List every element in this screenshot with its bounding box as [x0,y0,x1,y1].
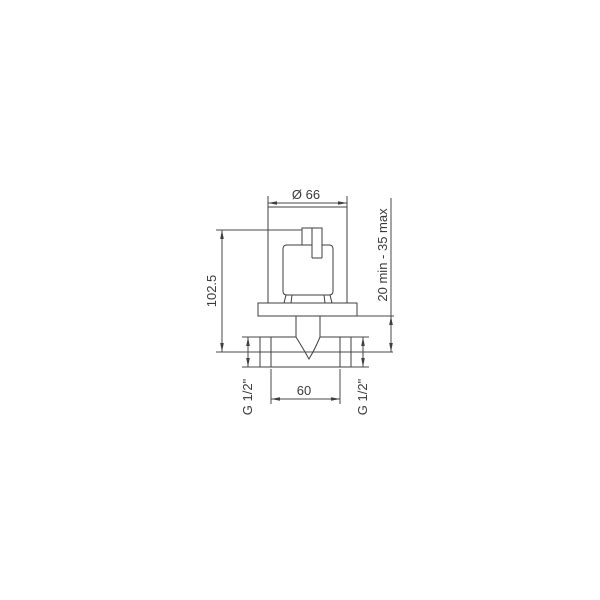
dim-thread-right: G 1/2" [351,337,370,415]
dim-diameter-arrow-right [338,201,347,205]
dim-height-arrow-bottom [220,343,224,352]
dim-label-plate-diameter: Ø 66 [292,187,320,202]
dim-thread-right-arrow-bottom [361,358,365,367]
plate-flange [258,303,357,316]
dim-width-arrow-left [271,397,280,401]
dim-total-height: 102.5 [204,230,302,352]
dim-depth-arrow-bottom [389,343,393,352]
dim-label-install-depth: 20 min - 35 max [375,208,390,302]
dim-label-thread-right: G 1/2" [355,378,370,415]
dim-thread-right-arrow-top [361,337,365,346]
dim-label-port-spacing: 60 [297,383,311,398]
escutcheon-plate [268,207,347,303]
valve-technical-drawing: Ø 66 102.5 20 min - 35 max G 1/2" [0,0,600,600]
dim-thread-left: G 1/2" [240,337,260,415]
dim-depth-arrow-top [389,316,393,325]
dim-thread-left-arrow-top [246,337,250,346]
dim-thread-left-arrow-bottom [246,358,250,367]
dim-port-spacing: 60 [271,369,340,404]
handle-spindle [302,228,322,258]
dim-plate-diameter: Ø 66 [268,187,347,207]
dim-height-arrow-top [220,230,224,239]
dim-label-thread-left: G 1/2" [240,378,255,415]
dim-install-depth: 20 min - 35 max [357,198,394,352]
dim-width-arrow-right [331,397,340,401]
handle-feet [284,295,332,303]
dim-diameter-arrow-left [268,201,277,205]
valve-neck [296,316,320,337]
dim-label-total-height: 102.5 [204,275,219,308]
handle-knob [283,245,333,295]
valve-figure [216,207,393,367]
valve-cone [296,337,320,359]
technical-drawing-page: Ø 66 102.5 20 min - 35 max G 1/2" [0,0,600,600]
